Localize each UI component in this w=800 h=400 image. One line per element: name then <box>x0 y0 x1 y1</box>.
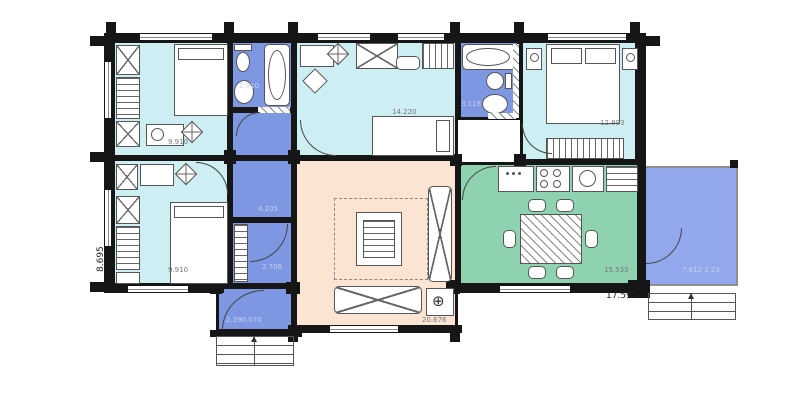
window-top-2 <box>318 34 370 40</box>
window-top-1 <box>140 34 212 40</box>
log-end <box>90 282 104 292</box>
log-end <box>450 22 460 35</box>
log-end <box>630 22 640 35</box>
shelf-icon <box>116 77 140 119</box>
window-left-2 <box>105 190 111 246</box>
kitchen-counter-icon <box>498 166 534 192</box>
window-top-4 <box>548 34 626 40</box>
chair-icon <box>556 199 574 212</box>
coffee-table-top-icon <box>363 220 395 258</box>
fireplace-symbol: ⊕ <box>432 294 445 309</box>
area-label-bathroom-2: 3.118 <box>461 100 481 108</box>
steps-arrow-icon <box>688 293 694 299</box>
area-label-bedroom-top-right: 12.993 <box>600 119 625 127</box>
cradle-icon <box>396 56 420 70</box>
log-joint <box>288 150 300 164</box>
area-label-entry: 2.390.070 <box>226 316 262 324</box>
threshold-hatch <box>488 113 516 119</box>
burner-icon <box>540 180 548 188</box>
floor-plan: ⊕ 9.910 2.910 14.220 3.118 12.993 4.205 … <box>0 0 800 400</box>
window-bottom-2 <box>330 326 398 332</box>
chair-icon <box>585 230 598 248</box>
bench-icon <box>116 272 140 284</box>
pillow-icon <box>174 206 224 218</box>
log-end <box>450 331 460 342</box>
log-end <box>224 22 234 35</box>
chair-icon <box>503 230 516 248</box>
pillow-icon <box>178 48 224 60</box>
area-label-hall: 2.706 <box>262 263 282 271</box>
log-joint <box>286 282 300 294</box>
lamp-icon <box>530 53 539 62</box>
bathtub-basin-icon <box>466 48 510 66</box>
bathtub-basin-icon <box>268 50 286 100</box>
wardrobe-icon <box>546 138 624 159</box>
desk-icon <box>140 164 174 186</box>
area-label-bedroom-top-left: 9.910 <box>168 138 188 146</box>
area-label-terrace: 7.612 2.23 <box>682 266 720 274</box>
cabinet-icon <box>116 164 138 190</box>
toilet-icon <box>486 72 504 90</box>
log-joint <box>514 154 526 166</box>
wall-right <box>638 33 646 293</box>
wardrobe-icon <box>116 121 140 147</box>
log-end <box>514 22 524 35</box>
burner-icon <box>553 180 561 188</box>
area-label-bedroom-bottom-left: 9.910 <box>168 266 188 274</box>
area-label-corridor: 4.205 <box>258 205 278 213</box>
pillow-icon <box>585 48 616 64</box>
dishwasher-icon <box>606 166 638 192</box>
chair-icon <box>528 199 546 212</box>
chair-icon <box>556 266 574 279</box>
log-end <box>90 152 104 162</box>
closet-icon <box>234 224 248 282</box>
sofa-icon <box>334 286 422 314</box>
log-end <box>90 36 104 46</box>
area-label-bedroom-top-middle: 14.220 <box>392 108 417 116</box>
area-label-living: 20.676 <box>422 316 447 324</box>
sofa-icon <box>428 186 452 282</box>
burner-icon <box>553 169 561 177</box>
pillow-icon <box>551 48 582 64</box>
knob-dots <box>506 172 509 175</box>
log-joint <box>224 150 236 164</box>
log-end <box>288 22 298 35</box>
lamp-icon <box>626 53 635 62</box>
area-label-kitchen-dining: 15.533 <box>604 266 629 274</box>
dimension-width: 17.595 <box>606 291 638 301</box>
post-icon <box>730 160 738 168</box>
toilet-tank-icon <box>505 73 512 89</box>
window-bottom-3 <box>500 286 570 292</box>
log-end <box>646 36 660 46</box>
wardrobe-icon <box>116 196 140 224</box>
pillow-icon <box>436 120 450 152</box>
sink-icon <box>482 94 508 114</box>
wall-hatch <box>513 44 519 118</box>
log-end <box>106 22 116 35</box>
window-left-1 <box>105 62 111 118</box>
shelf-icon <box>422 43 454 69</box>
burner-icon <box>540 169 548 177</box>
stool-icon <box>151 128 164 141</box>
shelf-icon <box>116 226 140 270</box>
dimension-height: 8.695 <box>96 246 106 272</box>
steps-arrow-icon <box>251 336 257 342</box>
kitchen-sink-icon <box>579 170 596 187</box>
dining-table-icon <box>520 214 582 264</box>
toilet-icon <box>236 52 250 72</box>
wardrobe-icon <box>116 45 140 75</box>
wardrobe-icon <box>356 43 398 69</box>
toilet-tank-icon <box>234 44 252 51</box>
chair-icon <box>528 266 546 279</box>
window-top-3 <box>398 34 444 40</box>
area-label-bathroom-1: 2.910 <box>239 82 259 90</box>
threshold-hatch <box>258 107 290 113</box>
window-bottom-1 <box>128 286 188 292</box>
